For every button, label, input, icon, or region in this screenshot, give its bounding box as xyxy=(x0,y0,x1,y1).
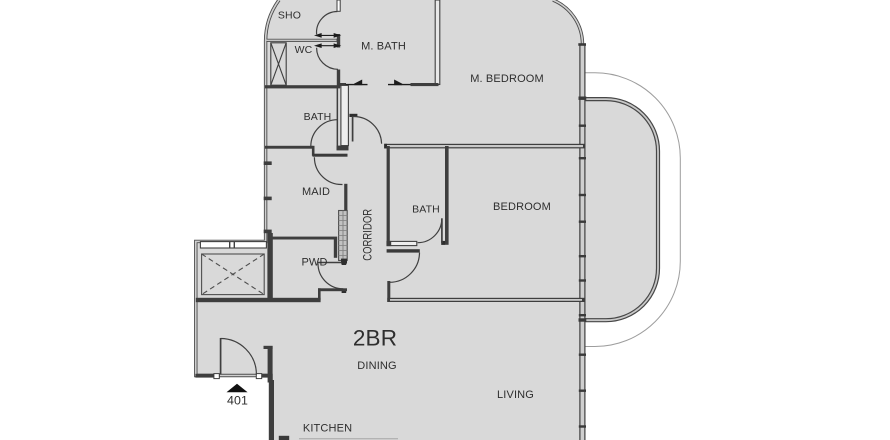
svg-text:WC: WC xyxy=(295,44,313,56)
svg-text:2BR: 2BR xyxy=(353,325,397,350)
svg-text:BATH: BATH xyxy=(304,111,332,123)
svg-text:BATH: BATH xyxy=(412,203,440,215)
svg-text:BEDROOM: BEDROOM xyxy=(493,201,551,213)
svg-text:M. BEDROOM: M. BEDROOM xyxy=(470,73,544,85)
svg-text:DINING: DINING xyxy=(357,360,396,372)
svg-text:M. BATH: M. BATH xyxy=(361,41,406,53)
svg-text:KITCHEN: KITCHEN xyxy=(303,423,352,435)
svg-text:PWD: PWD xyxy=(301,256,327,268)
svg-text:LIVING: LIVING xyxy=(497,389,534,401)
svg-text:MAID: MAID xyxy=(302,186,330,198)
svg-text:SHO: SHO xyxy=(278,9,301,21)
svg-text:401: 401 xyxy=(227,394,248,408)
svg-text:CORRIDOR: CORRIDOR xyxy=(362,209,375,261)
